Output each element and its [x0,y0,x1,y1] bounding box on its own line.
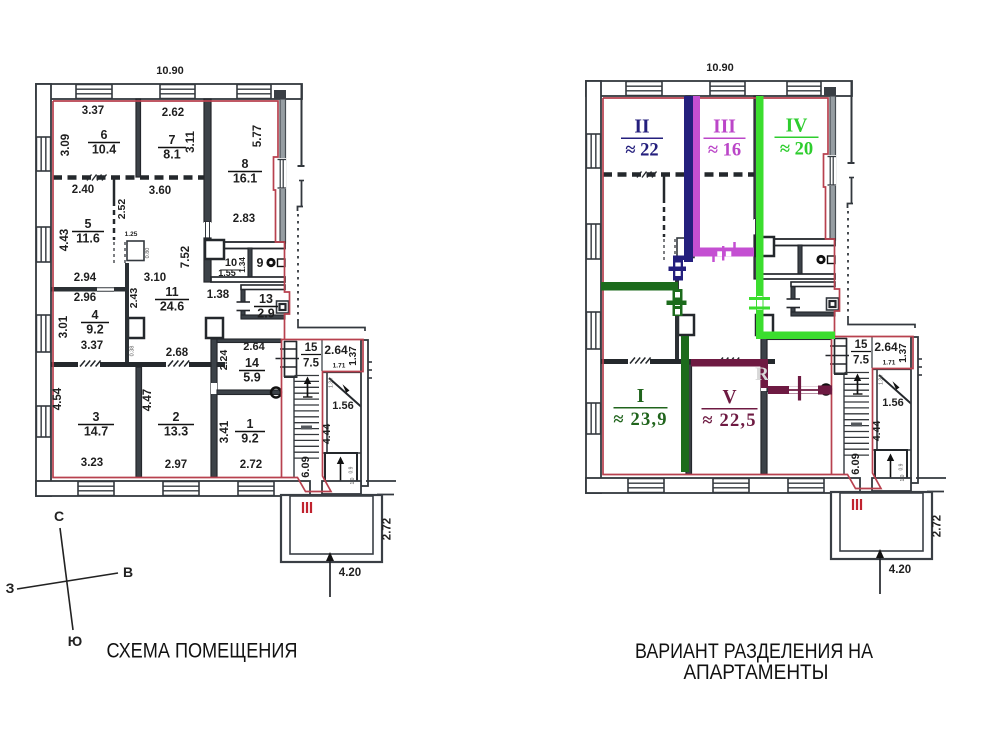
svg-text:1.55: 1.55 [218,268,236,278]
svg-text:9: 9 [257,256,264,270]
svg-text:5.9: 5.9 [243,371,260,385]
svg-text:3.60: 3.60 [149,185,171,197]
svg-text:4.43: 4.43 [59,229,71,251]
svg-text:4: 4 [92,308,99,322]
svg-text:СХЕМА ПОМЕЩЕНИЯ: СХЕМА ПОМЕЩЕНИЯ [107,639,298,663]
svg-text:З: З [6,580,15,596]
svg-text:3.11: 3.11 [185,131,197,153]
svg-text:3.37: 3.37 [81,340,103,352]
svg-text:13: 13 [259,292,273,306]
svg-text:≈ 22: ≈ 22 [625,141,658,161]
svg-text:8.1: 8.1 [163,148,180,162]
svg-text:3.01: 3.01 [58,315,70,338]
svg-text:9.2: 9.2 [86,323,103,337]
svg-text:1.25: 1.25 [125,231,138,238]
svg-text:В: В [123,564,133,580]
svg-text:≈ 22,5: ≈ 22,5 [702,411,756,431]
svg-text:2.68: 2.68 [166,347,189,359]
svg-text:2.64: 2.64 [243,341,265,353]
svg-text:3.09: 3.09 [60,134,72,156]
svg-text:16.1: 16.1 [233,172,257,186]
svg-text:0.80: 0.80 [145,248,151,259]
svg-text:4.54: 4.54 [52,387,64,410]
svg-text:АПАРТАМЕНТЫ: АПАРТАМЕНТЫ [684,660,829,684]
svg-text:II: II [634,117,649,138]
svg-text:С: С [54,508,64,524]
svg-text:1.38: 1.38 [207,289,230,301]
svg-text:2.83: 2.83 [233,213,255,225]
svg-text:11: 11 [165,285,178,299]
svg-text:≈ 16: ≈ 16 [708,141,741,161]
svg-text:1: 1 [247,417,254,431]
svg-text:2.72: 2.72 [240,459,262,471]
svg-text:1.34: 1.34 [238,257,247,273]
svg-text:11.6: 11.6 [76,232,100,246]
svg-text:3.10: 3.10 [144,272,166,284]
svg-text:7.52: 7.52 [180,246,192,268]
svg-text:8: 8 [242,157,249,171]
svg-text:6: 6 [101,128,108,142]
svg-text:3.41: 3.41 [219,420,231,443]
svg-text:2.62: 2.62 [162,107,184,119]
svg-text:2.96: 2.96 [74,292,96,304]
svg-text:14.7: 14.7 [84,425,108,439]
svg-text:14: 14 [245,356,259,370]
svg-text:R: R [755,364,769,385]
svg-text:2.40: 2.40 [72,184,94,196]
svg-text:Ю: Ю [68,633,82,649]
svg-text:10.4: 10.4 [92,143,116,157]
svg-text:2.24: 2.24 [218,350,230,371]
svg-text:0.38: 0.38 [130,346,136,357]
svg-text:7: 7 [169,133,176,147]
svg-text:24.6: 24.6 [160,300,184,314]
svg-text:2.97: 2.97 [165,459,187,471]
svg-text:V: V [722,387,736,408]
svg-text:13.3: 13.3 [164,425,188,439]
svg-text:3: 3 [93,410,100,424]
svg-text:3.37: 3.37 [82,105,104,117]
svg-text:≈ 20: ≈ 20 [780,140,813,160]
svg-text:III: III [713,117,736,138]
svg-text:2.9: 2.9 [257,307,274,321]
svg-text:2.43: 2.43 [128,288,140,309]
svg-text:2: 2 [173,410,180,424]
svg-text:≈ 23,9: ≈ 23,9 [613,410,667,430]
svg-text:5.77: 5.77 [252,125,264,147]
svg-text:2.94: 2.94 [74,272,97,284]
svg-text:3.23: 3.23 [81,457,103,469]
svg-text:5: 5 [85,217,92,231]
svg-text:4.47: 4.47 [142,389,154,411]
svg-text:2.52: 2.52 [116,199,128,220]
svg-text:IV: IV [786,116,808,137]
svg-text:I: I [637,386,645,407]
svg-text:9.2: 9.2 [241,432,258,446]
